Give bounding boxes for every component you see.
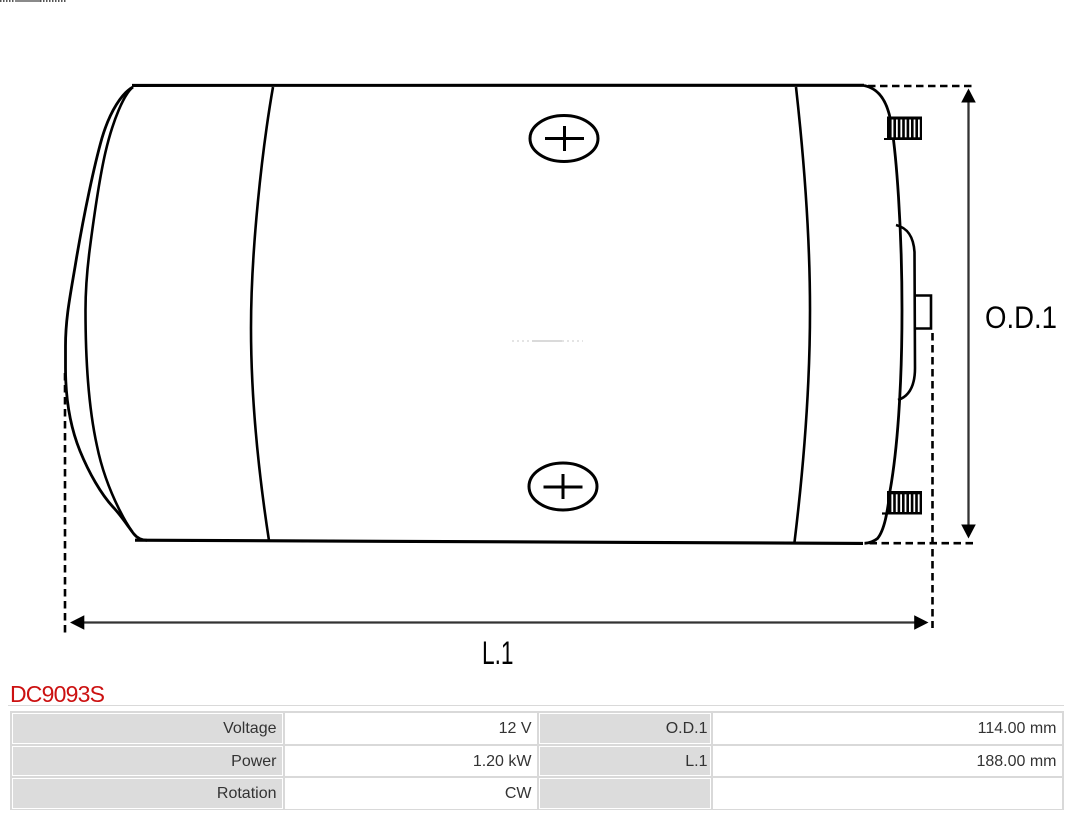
svg-text:O.D.1: O.D.1 <box>985 299 1057 335</box>
svg-text:L.1: L.1 <box>482 635 514 671</box>
